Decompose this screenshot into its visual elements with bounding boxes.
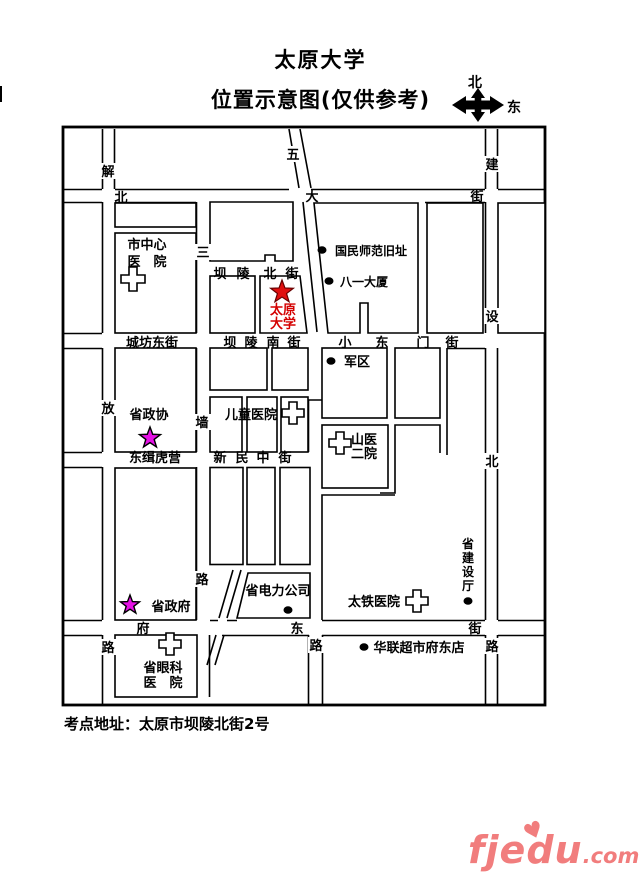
landmark-shizhongxin-line1: 市中心 bbox=[127, 237, 166, 253]
landmark-taitie: 太铁医院 bbox=[347, 594, 400, 610]
street-label-jianshebeilu-4: 路 bbox=[485, 639, 499, 655]
street-label-xinminzhongjie-4: 街 bbox=[277, 450, 291, 466]
street-label-xinminzhongjie-3: 中 bbox=[256, 450, 269, 466]
landmark-junqu: 军区 bbox=[344, 355, 370, 370]
street-label-jiefanglu-1: 解 bbox=[100, 164, 114, 180]
street-label-jiefanglu-2: 放 bbox=[100, 401, 115, 417]
street-label-balingbeijie-3: 北 bbox=[263, 267, 276, 282]
page: 太原大学 位置示意图(仅供参考) 北 东 bbox=[0, 0, 641, 888]
street-label-balingnanjie-3: 南 bbox=[266, 335, 279, 351]
street-label-beidajie-1: 北 bbox=[114, 191, 127, 206]
street-label-dongjihuying: 东缉虎营 bbox=[129, 450, 181, 466]
street-label-xiaodongmenjie-2: 东 bbox=[375, 335, 388, 351]
landmark-shanyi-line2: 二院 bbox=[351, 446, 377, 462]
exam-site-address: 考点地址：太原市坝陵北街2号 bbox=[64, 713, 269, 734]
street-label-sanqianglu-2: 墙 bbox=[195, 415, 208, 431]
landmark-shanyi-line1: 山医 bbox=[351, 432, 377, 448]
street-label-sanqianglu-3: 路 bbox=[195, 572, 209, 588]
landmark-shengjianshe-2: 建 bbox=[461, 550, 475, 565]
street-label-balingnanjie-2: 陵 bbox=[244, 335, 258, 351]
landmark-shengzhengxie: 省政协 bbox=[128, 407, 168, 423]
street-label-chengfangdongjie: 城坊东街 bbox=[126, 335, 178, 351]
bullet-icon-guominshifan bbox=[318, 246, 327, 254]
landmark-guominshifan: 国民师范旧址 bbox=[335, 243, 407, 258]
landmark-taiyuandaxue-line2: 大学 bbox=[270, 316, 296, 332]
landmark-shengjianshe-4: 厅 bbox=[462, 579, 474, 593]
landmark-shengzhengfu: 省政府 bbox=[150, 599, 190, 615]
landmark-ertongyiyuan: 儿童医院 bbox=[224, 407, 277, 423]
street-label-balingbeijie-2: 陵 bbox=[236, 266, 250, 282]
landmark-shengdianli: 省电力公司 bbox=[244, 583, 310, 599]
landmark-shengjianshe-1: 省 bbox=[461, 536, 474, 551]
street-label-sanqianglu-1: 三 bbox=[196, 246, 209, 261]
street-label-jiefanglu-3: 路 bbox=[101, 640, 115, 656]
bullet-icon-junqu bbox=[327, 357, 336, 365]
street-label-beidajie-3: 街 bbox=[469, 189, 483, 205]
street-label-xiaodongmenjie-3: 门 bbox=[416, 335, 429, 351]
street-label-jianshebeilu-3: 北 bbox=[485, 455, 498, 470]
logo-tld: .com bbox=[583, 844, 640, 868]
street-label-xiaodongmenjie-1: 小 bbox=[338, 336, 351, 351]
street-label-fudongjie-3: 街 bbox=[467, 621, 481, 637]
street-label-lu: 路 bbox=[309, 638, 323, 654]
street-label-xinminzhongjie-2: 民 bbox=[235, 451, 248, 466]
landmark-shengjianshe-3: 设 bbox=[462, 564, 475, 579]
street-label-xinminzhongjie-1: 新 bbox=[213, 450, 226, 466]
street-label-balingbeijie-4: 街 bbox=[284, 266, 298, 282]
street-label-beidajie-2: 大 bbox=[305, 189, 318, 205]
street-label-balingbeijie-1: 坝 bbox=[213, 267, 226, 282]
site-logo: fjedu.com ♥ bbox=[468, 828, 639, 872]
location-map: 北 大 街 解 放 路 五 三 墙 路 坝 陵 北 街 城坊东街 坝 陵 南 街… bbox=[0, 0, 641, 888]
street-label-fudongjie-1: 府 bbox=[136, 621, 149, 637]
bullet-icon-shengjianshe bbox=[464, 597, 473, 605]
street-label-xiaodongmenjie-4: 街 bbox=[444, 335, 458, 351]
landmark-shengyanke-line1: 省眼科 bbox=[142, 660, 182, 676]
street-label-balingnanjie-1: 坝 bbox=[223, 336, 236, 351]
landmark-hualian: 华联超市府东店 bbox=[373, 640, 464, 656]
compass-icon bbox=[452, 88, 504, 122]
landmark-bayidasha: 八一大厦 bbox=[339, 274, 389, 289]
bullet-icon-shengdianli bbox=[284, 606, 293, 614]
street-label-balingnanjie-4: 街 bbox=[286, 335, 300, 351]
street-label-wuyilu: 五 bbox=[286, 148, 299, 163]
street-label-fudongjie-2: 东 bbox=[290, 621, 303, 637]
landmark-shengyanke-line2: 医 院 bbox=[143, 675, 182, 691]
landmark-shizhongxin-line2: 医 院 bbox=[127, 254, 166, 270]
bullet-icon-bayidasha bbox=[325, 277, 334, 285]
bullet-icon-hualian bbox=[360, 643, 369, 651]
street-label-jianshebeilu-1: 建 bbox=[485, 157, 498, 173]
street-label-jianshebeilu-2: 设 bbox=[485, 310, 499, 325]
landmark-taiyuandaxue-line1: 太原 bbox=[269, 302, 296, 318]
